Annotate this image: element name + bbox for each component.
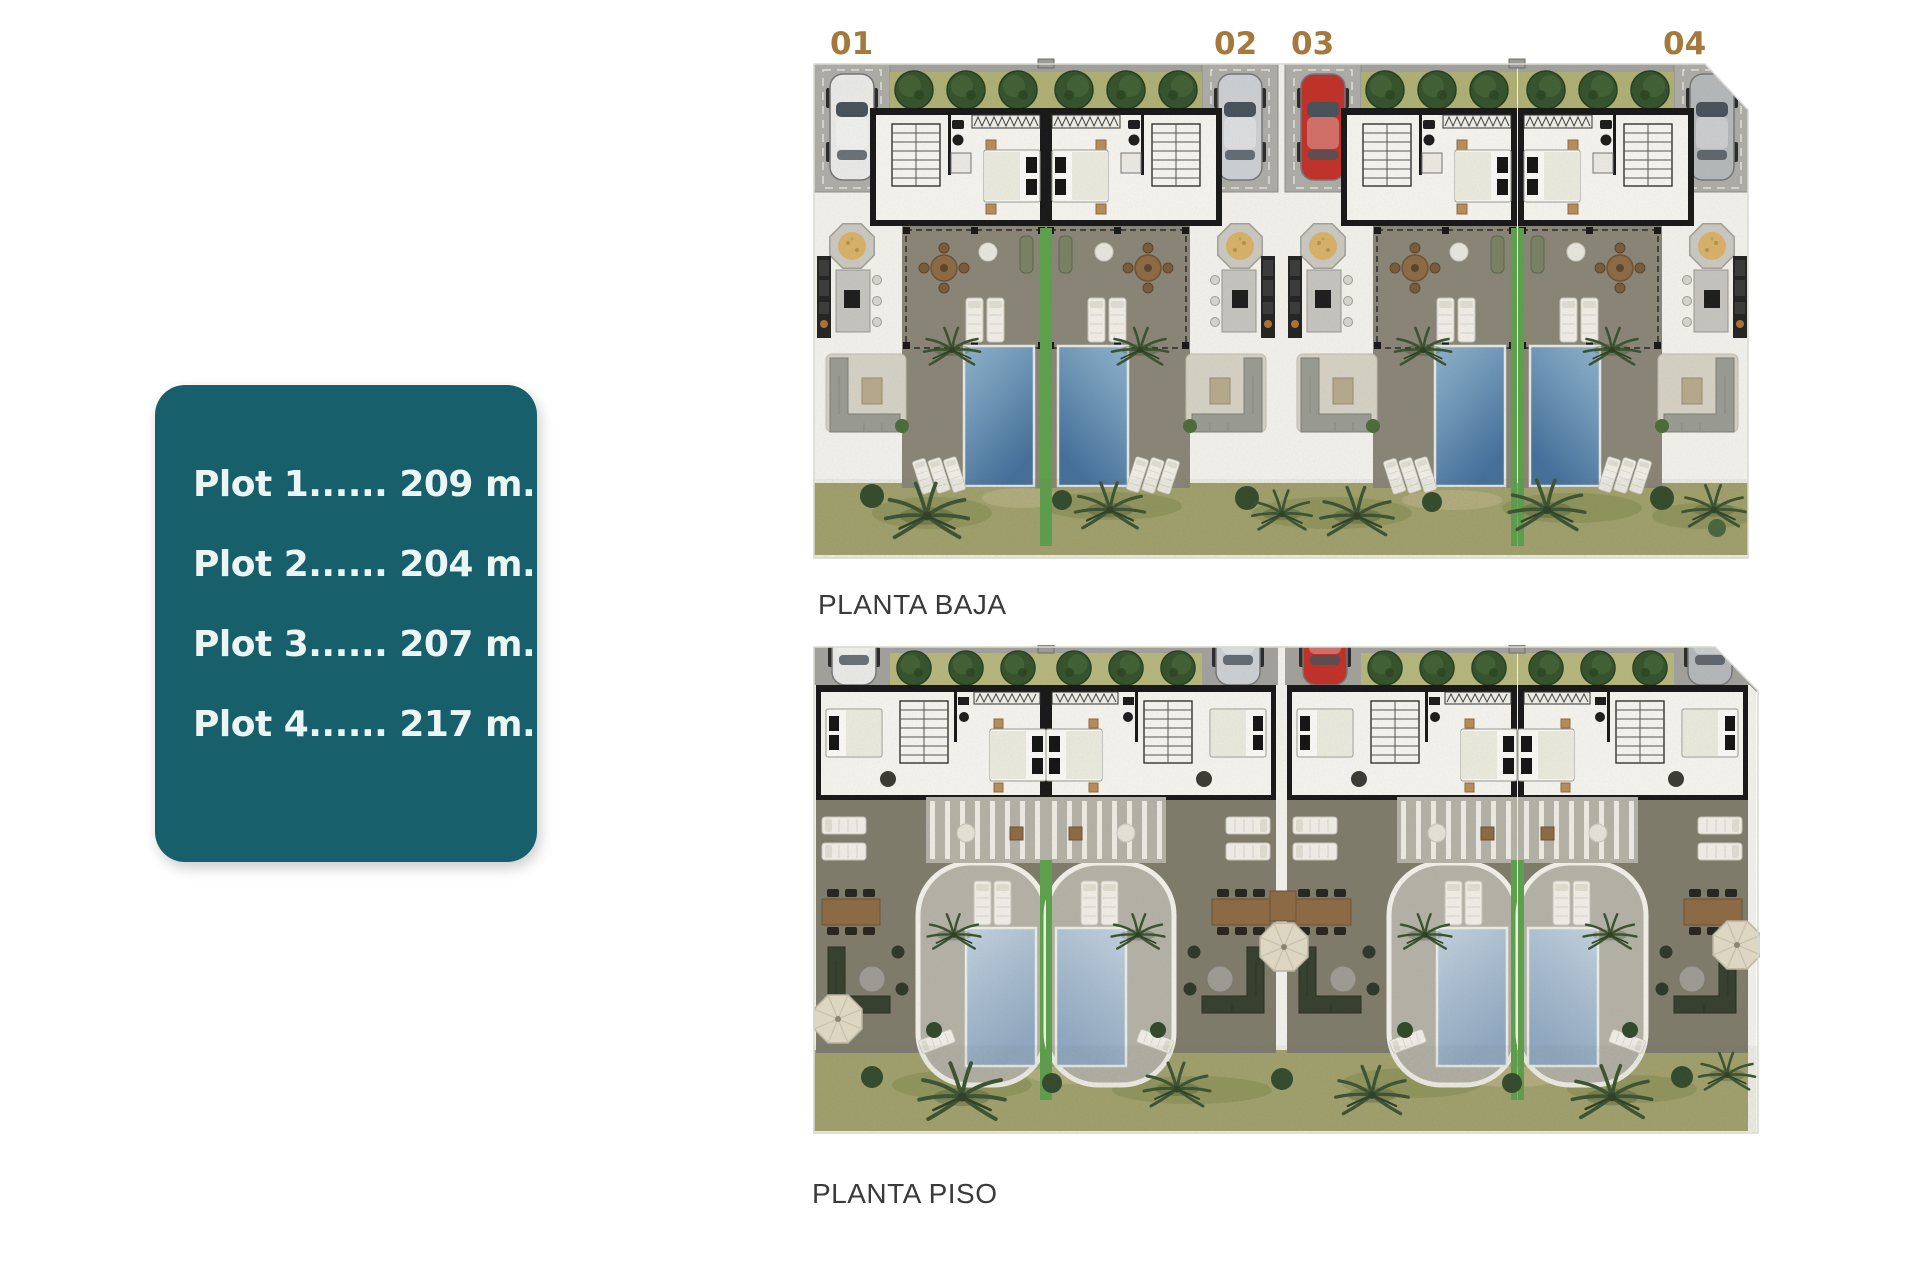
parasol-left [814,995,862,1043]
plot-line-4: Plot 4...... 217 m. [193,685,537,765]
unit-label-02: 02 [1214,26,1257,62]
planta-baja-drawing [814,64,1752,558]
party-wall-tab [1038,645,1054,653]
unit-label-03: 03 [1291,26,1334,62]
plot-summary-card: Plot 1...... 209 m. Plot 2...... 204 m. … [155,385,537,862]
floor-plan-planta-piso [812,645,1760,1140]
unit-label-01: 01 [830,26,873,62]
plot-line-2: Plot 2...... 204 m. [193,525,537,605]
page: Plot 1...... 209 m. Plot 2...... 204 m. … [0,0,1920,1280]
parasol-right [1713,921,1760,969]
plan-title-planta-baja: PLANTA BAJA [818,589,1007,621]
plot-line-3: Plot 3...... 207 m. [193,605,537,685]
unit-label-04: 04 [1663,26,1706,62]
parasol-center [1260,923,1308,971]
plot-line-1: Plot 1...... 209 m. [193,445,537,525]
floor-plan-planta-baja [812,58,1760,573]
plan-title-planta-piso: PLANTA PISO [812,1178,998,1210]
planta-piso-drawing [814,645,1757,1133]
party-wall-tab [1509,645,1525,653]
